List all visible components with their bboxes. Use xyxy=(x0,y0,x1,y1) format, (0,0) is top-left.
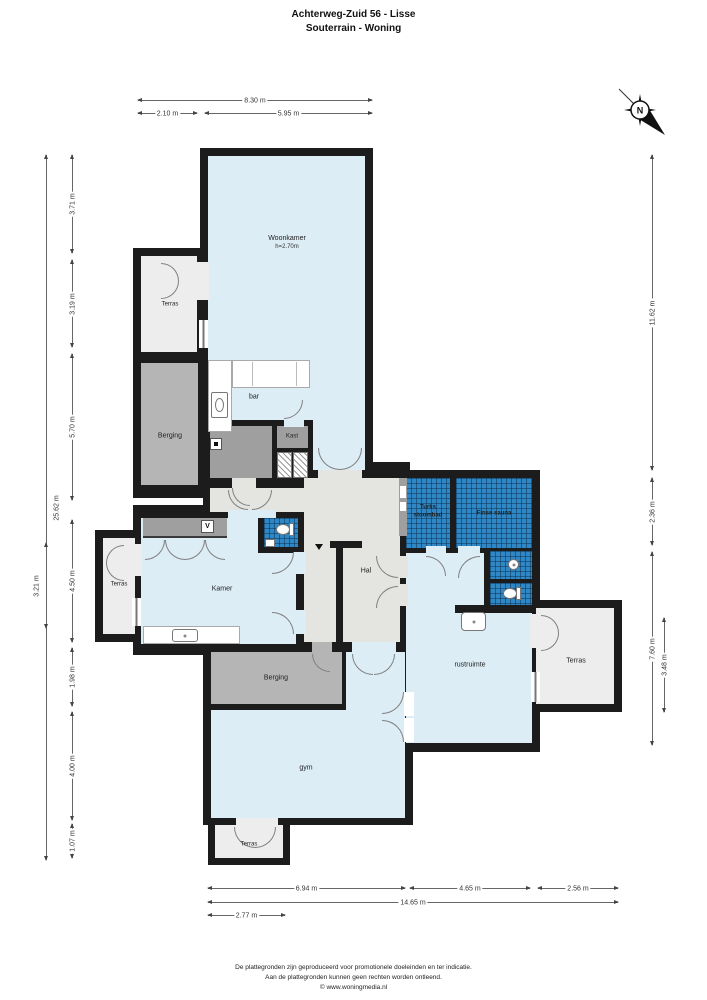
closet-sliding-door xyxy=(293,452,308,478)
room-label-finse-sauna: Finse sauna xyxy=(477,510,512,518)
sink-icon xyxy=(172,629,198,642)
floor-plan: Achterweg-Zuid 56 - Lisse Souterrain - W… xyxy=(0,0,707,1000)
sink-icon xyxy=(265,539,275,547)
dimension-bottom-277: 2.77 m xyxy=(208,915,285,916)
door-opening xyxy=(284,419,304,427)
dimension-left-198: 1.98 m xyxy=(72,648,73,706)
door-opening xyxy=(404,692,414,716)
room-label-terras-left: Terras xyxy=(111,581,128,589)
dim-label: 2.56 m xyxy=(565,886,590,893)
dim-label: 8.30 m xyxy=(242,98,267,105)
door-opening xyxy=(197,262,209,300)
room-rustruimte xyxy=(406,613,532,743)
room-label-terras-bottom: Terras xyxy=(241,841,258,849)
dim-label: 5.70 m xyxy=(70,414,77,439)
stairs-direction-marker xyxy=(315,544,323,550)
door-opening xyxy=(398,584,408,606)
dim-label: 2.77 m xyxy=(234,913,259,920)
wall xyxy=(330,541,362,548)
dimension-right-1162: 11.62 m xyxy=(652,155,653,470)
door-opening xyxy=(294,610,306,634)
dimension-top-830: 8.30 m xyxy=(138,100,372,101)
dim-label: 1.98 m xyxy=(70,664,77,689)
boiler-glyph xyxy=(214,442,218,446)
dimension-left-570: 5.70 m xyxy=(72,354,73,500)
compass-north-label: N xyxy=(637,106,644,116)
dimension-left-2562: 25.62 m xyxy=(46,155,47,860)
door-opening xyxy=(294,552,306,574)
dim-label: 1.07 m xyxy=(70,828,77,853)
dim-label: 4.50 m xyxy=(70,568,77,593)
dim-label: 4.65 m xyxy=(457,886,482,893)
window xyxy=(531,672,540,702)
door-opening xyxy=(398,556,408,578)
room-label-hal: Hal xyxy=(361,568,372,577)
dimension-top-210: 2.10 m xyxy=(138,113,197,114)
woonkamer-height-note: h=2.70m xyxy=(268,244,306,252)
dimension-right-760: 7.60 m xyxy=(652,552,653,745)
dimension-left-107: 1.07 m xyxy=(72,824,73,858)
dimension-top-595: 5.95 m xyxy=(205,113,372,114)
room-label-rustruimte: rustruimte xyxy=(454,662,485,671)
title-line2: Souterrain - Woning xyxy=(0,22,707,36)
disclaimer-line3: © www.woningmedia.nl xyxy=(0,983,707,993)
dim-label: 3.19 m xyxy=(70,291,77,316)
closet-sliding-door xyxy=(277,452,292,478)
disclaimer: De plattegronden zijn geproduceerd voor … xyxy=(0,963,707,993)
window xyxy=(199,320,208,348)
dim-label: 7.60 m xyxy=(650,636,657,661)
woonkamer-label-text: Woonkamer xyxy=(268,235,306,244)
niche-fixture xyxy=(400,486,406,498)
ventilation-marker: V xyxy=(201,520,214,533)
dim-label: 3.21 m xyxy=(34,573,41,598)
v-marker-label: V xyxy=(205,523,210,530)
dim-label: 3.71 m xyxy=(70,191,77,216)
toilet-tank-icon xyxy=(516,587,521,600)
room-berging-top xyxy=(141,363,198,485)
dim-label: 14.65 m xyxy=(398,900,427,907)
dim-label: 4.00 m xyxy=(70,753,77,778)
room-technical xyxy=(210,426,272,478)
dim-label: 11.62 m xyxy=(650,298,657,327)
door-opening xyxy=(132,544,142,576)
room-label-bar: bar xyxy=(249,394,259,403)
window xyxy=(132,598,141,626)
door-opening xyxy=(318,470,362,478)
room-label-terras-right: Terras xyxy=(566,658,585,667)
counter-divider xyxy=(252,362,253,386)
dim-label: 3.48 m xyxy=(662,652,669,677)
dimension-left-319: 3.19 m xyxy=(72,260,73,347)
page-title: Achterweg-Zuid 56 - Lisse Souterrain - W… xyxy=(0,8,707,36)
dimension-right-348: 3.48 m xyxy=(664,618,665,712)
dim-label: 6.94 m xyxy=(294,886,319,893)
room-label-terras-top: Terras xyxy=(162,301,179,309)
dimension-bottom-256: 2.56 m xyxy=(538,888,618,889)
counter-divider xyxy=(296,362,297,386)
dimension-bottom-694: 6.94 m xyxy=(208,888,405,889)
dim-label: 5.95 m xyxy=(276,111,301,118)
door-opening xyxy=(312,642,332,652)
room-label-kast: Kast xyxy=(286,433,298,441)
compass-icon: N xyxy=(610,80,672,142)
room-label-berging-top: Berging xyxy=(158,433,182,442)
door-opening xyxy=(426,546,446,556)
shower-icon xyxy=(508,559,519,570)
boiler-icon xyxy=(210,438,222,450)
toilet-tank-icon xyxy=(289,523,294,536)
room-label-kamer: Kamer xyxy=(212,586,233,595)
toilet-icon xyxy=(276,524,290,535)
sink-icon xyxy=(461,612,486,631)
dimension-bottom-465: 4.65 m xyxy=(410,888,530,889)
dimension-bottom-1465: 14.65 m xyxy=(208,902,618,903)
bar-counter xyxy=(232,360,310,388)
door-opening xyxy=(458,546,480,556)
closet-strip xyxy=(143,518,227,538)
dimension-left-371: 3.71 m xyxy=(72,155,73,253)
disclaimer-line1: De plattegronden zijn geproduceerd voor … xyxy=(0,963,707,973)
room-label-gym: gym xyxy=(299,765,312,774)
toilet-icon xyxy=(503,588,517,599)
dimension-left-321: 3.21 m xyxy=(46,543,47,628)
room-label-berging-bottom: Berging xyxy=(264,675,288,684)
title-line1: Achterweg-Zuid 56 - Lisse xyxy=(0,8,707,22)
door-opening xyxy=(236,818,278,827)
dimension-left-450: 4.50 m xyxy=(72,520,73,642)
room-label-turks-stoombad: Turks stoombad xyxy=(406,505,450,520)
room-label-woonkamer: Woonkamer h=2.70m xyxy=(268,235,306,251)
door-opening xyxy=(232,478,256,488)
bar-sink-basin xyxy=(215,398,224,412)
wall xyxy=(336,548,343,642)
door-opening xyxy=(228,510,276,518)
dim-label: 25.62 m xyxy=(54,493,61,522)
dimension-left-400: 4.00 m xyxy=(72,712,73,820)
disclaimer-line2: Aan de plattegronden kunnen geen rechten… xyxy=(0,973,707,983)
dim-label: 2.36 m xyxy=(650,499,657,524)
door-opening xyxy=(404,718,414,742)
dim-label: 2.10 m xyxy=(155,111,180,118)
dimension-right-236: 2.36 m xyxy=(652,478,653,545)
door-opening xyxy=(352,642,396,652)
